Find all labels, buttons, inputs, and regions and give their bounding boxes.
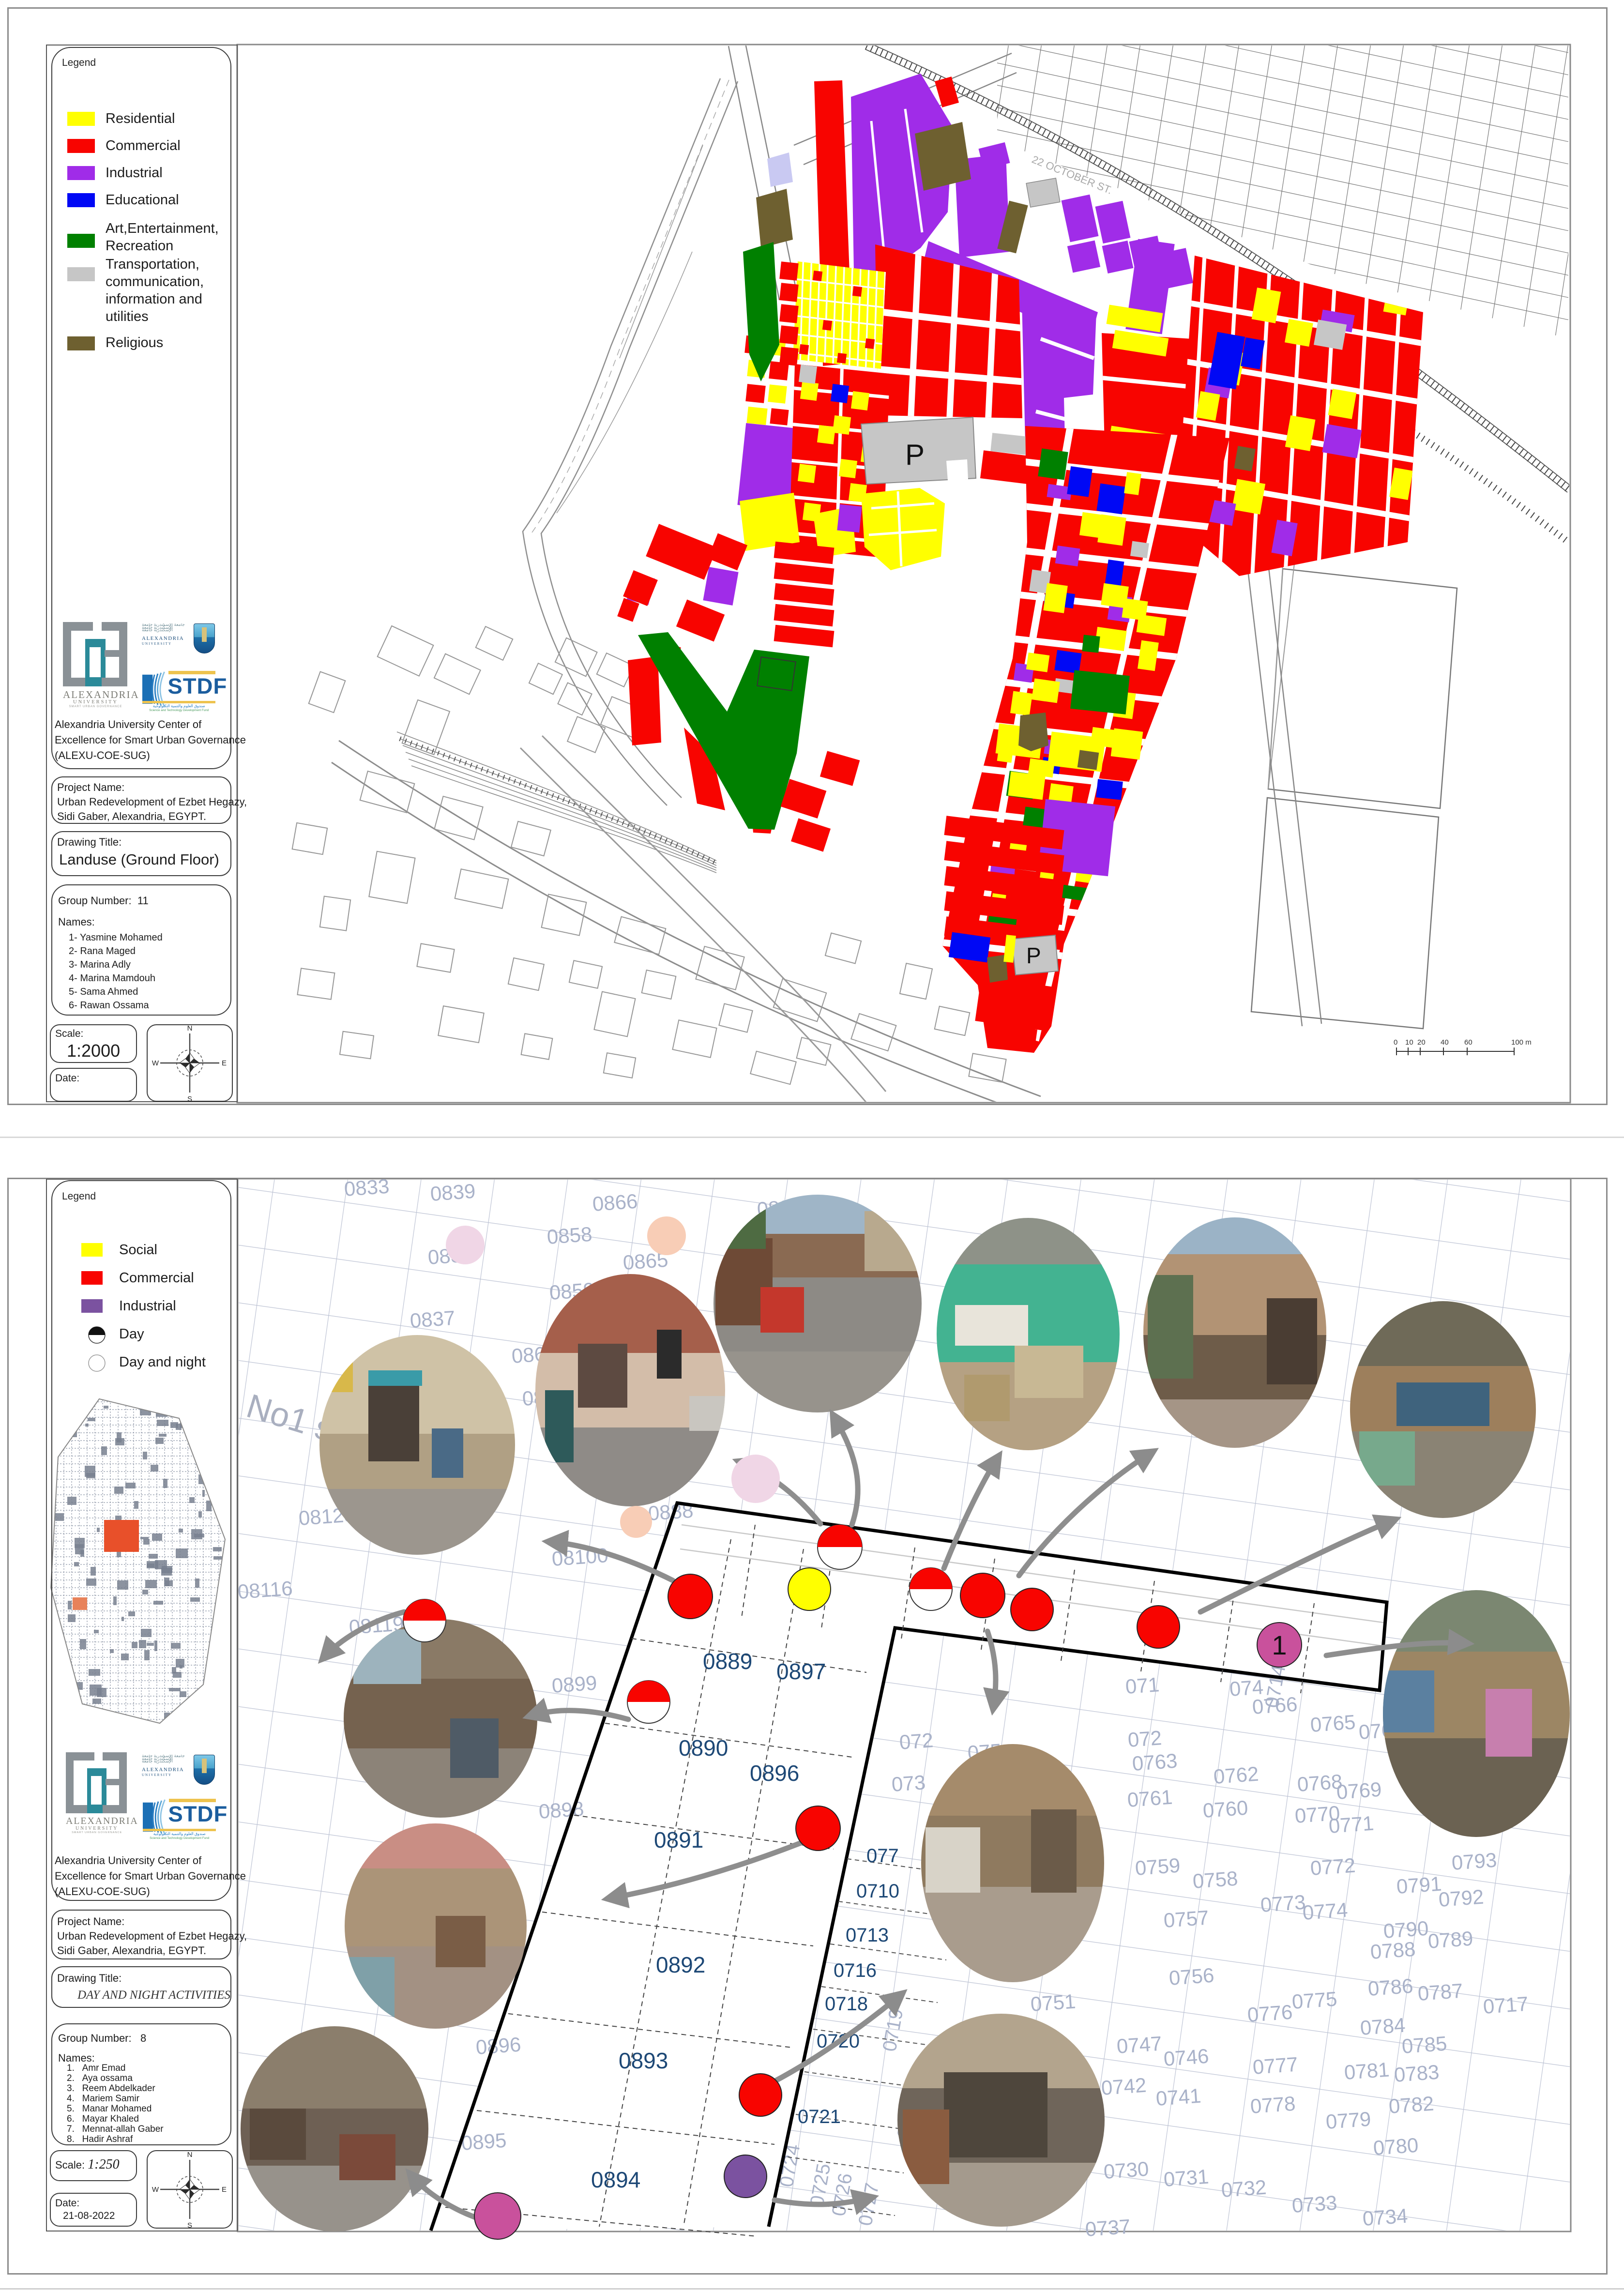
svg-text:077: 077: [866, 1845, 899, 1867]
svg-text:0721: 0721: [798, 2106, 841, 2127]
svg-text:0763: 0763: [1131, 1749, 1178, 1775]
svg-text:0742: 0742: [1100, 2074, 1147, 2099]
svg-text:0896: 0896: [475, 2033, 521, 2059]
svg-text:0751: 0751: [1030, 1990, 1076, 2016]
svg-text:0779: 0779: [1325, 2108, 1371, 2133]
svg-text:0780: 0780: [1372, 2134, 1419, 2159]
svg-text:0899: 0899: [551, 1671, 597, 1697]
svg-text:0837: 0837: [409, 1306, 455, 1332]
svg-text:0890: 0890: [679, 1735, 728, 1761]
svg-text:0741: 0741: [1155, 2084, 1201, 2110]
svg-text:0773: 0773: [1260, 1891, 1306, 1916]
svg-text:0891: 0891: [654, 1827, 703, 1852]
svg-text:0895: 0895: [460, 2129, 507, 2155]
svg-text:1: 1: [1272, 1630, 1287, 1660]
svg-text:0759: 0759: [1134, 1854, 1181, 1880]
svg-text:0746: 0746: [1163, 2045, 1209, 2070]
svg-text:072: 072: [1127, 1726, 1162, 1751]
svg-text:0771: 0771: [1328, 1812, 1374, 1837]
svg-text:073: 073: [891, 1771, 926, 1796]
svg-text:0734: 0734: [1362, 2204, 1408, 2230]
svg-text:0774: 0774: [1302, 1898, 1348, 1924]
svg-text:071: 071: [1124, 1673, 1160, 1698]
svg-text:0730: 0730: [1103, 2157, 1149, 2183]
svg-text:0792: 0792: [1438, 1885, 1484, 1911]
svg-text:0718: 0718: [825, 1993, 868, 2015]
svg-text:0787: 0787: [1417, 1979, 1463, 2005]
svg-text:0769: 0769: [1336, 1778, 1382, 1804]
svg-text:0710: 0710: [856, 1881, 899, 1902]
svg-text:0889: 0889: [703, 1649, 752, 1674]
svg-text:0758: 0758: [1192, 1867, 1238, 1893]
svg-text:N: N: [187, 2151, 193, 2159]
svg-text:0765: 0765: [1309, 1711, 1356, 1736]
svg-text:0892: 0892: [656, 1952, 705, 1977]
svg-text:0713: 0713: [846, 1925, 889, 1946]
svg-text:0894: 0894: [591, 2167, 640, 2192]
svg-text:0793: 0793: [1451, 1849, 1497, 1874]
svg-text:0788: 0788: [1369, 1938, 1416, 1963]
svg-text:0896: 0896: [750, 1761, 799, 1786]
svg-text:0839: 0839: [429, 1180, 476, 1205]
svg-text:0783: 0783: [1393, 2061, 1440, 2086]
svg-text:0791: 0791: [1396, 1872, 1442, 1898]
svg-text:08116: 08116: [237, 1577, 293, 1603]
svg-text:072: 072: [898, 1729, 934, 1754]
svg-text:0737: 0737: [1084, 2215, 1131, 2241]
svg-text:0784: 0784: [1359, 2014, 1406, 2039]
svg-text:0761: 0761: [1126, 1786, 1173, 1811]
svg-text:S: S: [187, 2221, 192, 2230]
svg-text:0760: 0760: [1202, 1796, 1248, 1822]
svg-text:0782: 0782: [1388, 2092, 1434, 2118]
svg-text:W: W: [152, 2186, 159, 2194]
svg-text:0785: 0785: [1401, 2032, 1447, 2058]
svg-text:0897: 0897: [776, 1659, 826, 1684]
svg-text:0717: 0717: [1482, 1992, 1529, 2018]
svg-text:0777: 0777: [1252, 2053, 1298, 2079]
svg-text:E: E: [222, 2186, 227, 2194]
svg-text:0866: 0866: [592, 1190, 638, 1215]
svg-text:0731: 0731: [1163, 2165, 1209, 2191]
svg-text:0733: 0733: [1291, 2191, 1337, 2217]
svg-text:0893: 0893: [619, 2048, 668, 2073]
svg-text:0778: 0778: [1249, 2092, 1296, 2118]
svg-text:0858: 0858: [546, 1223, 592, 1248]
svg-text:0776: 0776: [1246, 2001, 1293, 2026]
svg-text:0772: 0772: [1309, 1854, 1356, 1880]
svg-text:0762: 0762: [1213, 1762, 1259, 1788]
svg-text:0716: 0716: [834, 1960, 877, 1981]
svg-text:0833: 0833: [343, 1175, 390, 1200]
svg-text:0732: 0732: [1220, 2176, 1267, 2201]
svg-text:0775: 0775: [1291, 1988, 1337, 2013]
svg-text:0789: 0789: [1427, 1927, 1473, 1953]
svg-text:0757: 0757: [1163, 1906, 1209, 1932]
svg-text:0747: 0747: [1116, 2032, 1162, 2058]
svg-text:0756: 0756: [1168, 1964, 1214, 1989]
svg-text:0786: 0786: [1367, 1974, 1413, 2000]
svg-text:0781: 0781: [1343, 2058, 1390, 2084]
